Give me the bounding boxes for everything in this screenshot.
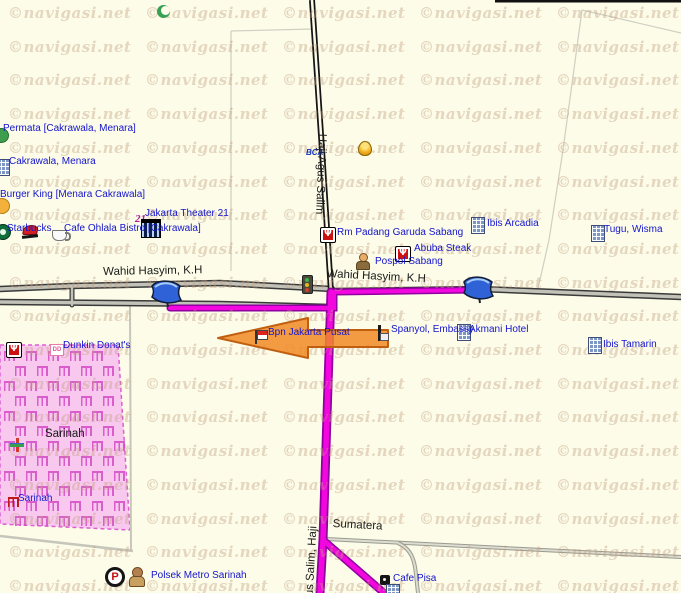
poi-label: Ibis Arcadia [487, 218, 539, 229]
poi-label: Tugu, Wisma [604, 224, 663, 235]
road-label: Wahid Hasyim, K.H [326, 268, 426, 285]
poi-label: Bpn Jakarta Pusat [268, 327, 350, 338]
road-label: Haji Agus Salim [313, 134, 328, 215]
poi-label: Sarinah [18, 493, 52, 504]
poi-label: Akmani Hotel [469, 324, 528, 335]
poi-label: Starbucks [7, 223, 51, 234]
poi-label: Dunkin Donat's [63, 340, 131, 351]
poi-label: Rm Padang Garuda Sabang [337, 227, 463, 238]
poi-label: Spanyol, Embassy [391, 324, 474, 335]
poi-label: Polsek Metro Sarinah [151, 570, 247, 581]
map-canvas[interactable]: ©navigasi.net©navigasi.net©navigasi.net©… [0, 0, 681, 593]
poi-label: Cafe Ohlala Bistro [Cakrawala] [64, 223, 201, 234]
poi-label: Abuba Steak [414, 243, 471, 254]
road-label: Sumatera [332, 518, 382, 533]
map-label-layer: Permata [Cakrawala, Menara]Cakrawala, Me… [0, 0, 681, 593]
poi-label: Cafe Pisa [393, 573, 436, 584]
road-label: Sarinah [45, 428, 85, 440]
poi-label: Ibis Tamarin [603, 339, 657, 350]
poi-label: Jakarta Theater 21 [145, 208, 229, 219]
poi-label: Cakrawala, Menara [9, 156, 96, 167]
poi-label: Pospol Sabang [375, 256, 443, 267]
road-label: Wahid Hasyim, K.H [103, 264, 202, 278]
poi-label: Permata [Cakrawala, Menara] [3, 123, 136, 134]
poi-label: Burger King [Menara Cakrawala] [0, 189, 145, 200]
road-label: Agus Salim, Haji [303, 526, 319, 593]
